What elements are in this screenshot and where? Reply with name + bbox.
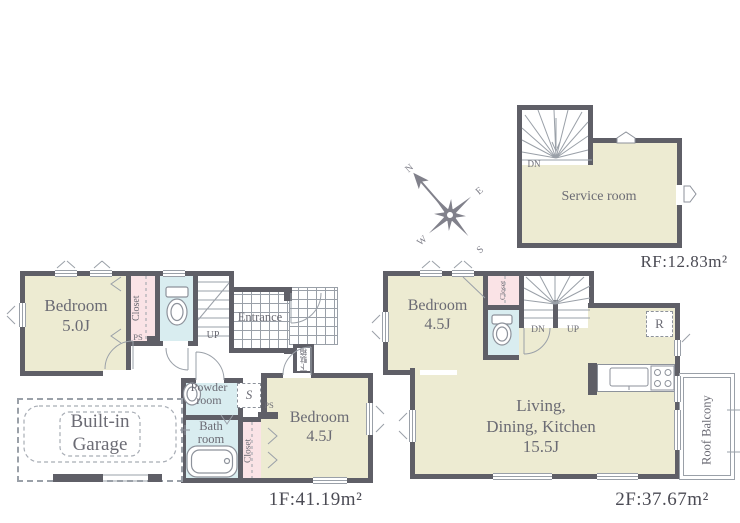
window bbox=[597, 473, 638, 480]
window bbox=[55, 270, 77, 277]
label-2f-closet: Closet bbox=[495, 274, 510, 306]
window bbox=[382, 312, 389, 342]
window bbox=[90, 270, 112, 277]
label-entrance: Entrance bbox=[233, 310, 287, 325]
compass-n: N bbox=[403, 162, 416, 175]
compass-icon: N E S W bbox=[374, 138, 515, 283]
room-2f-toilet bbox=[483, 305, 524, 360]
label-washer-space: S bbox=[240, 386, 258, 404]
door-opening bbox=[676, 185, 683, 205]
label-2f-area: 2F:37.67m² bbox=[588, 488, 736, 512]
entrance-porch bbox=[289, 287, 338, 345]
label-1f-up: UP bbox=[196, 329, 230, 342]
kitchen-counter bbox=[597, 364, 675, 392]
label-1f-closet-top: Closet bbox=[128, 280, 146, 336]
label-1f-closet-bottom: Closet bbox=[241, 427, 257, 475]
door-opening bbox=[103, 370, 133, 376]
label-refrigerator: R bbox=[646, 312, 673, 336]
door-opening bbox=[163, 341, 188, 346]
room-1f-toilet bbox=[155, 271, 198, 346]
balcony-door bbox=[674, 410, 681, 450]
window bbox=[452, 270, 474, 277]
label-garage: Built-in Garage bbox=[40, 406, 160, 462]
label-roof-balcony: Roof Balcony bbox=[698, 390, 716, 470]
garage-wall bbox=[148, 474, 162, 482]
window bbox=[493, 473, 552, 480]
compass-s: S bbox=[475, 244, 486, 256]
stair-divider-wall bbox=[553, 300, 558, 328]
label-rf-area: RF:12.83m² bbox=[628, 251, 740, 273]
label-1f-bedroom-5j: Bedroom 5.0J bbox=[26, 293, 126, 339]
label-powder-room: Powder room bbox=[182, 381, 236, 407]
sliding-opening bbox=[420, 370, 457, 375]
balcony-door bbox=[674, 376, 681, 402]
window bbox=[420, 270, 442, 277]
compass-e: E bbox=[474, 185, 486, 197]
label-ldk: Living, Dining, Kitchen 15.5J bbox=[450, 396, 632, 458]
door-arrow-icon bbox=[684, 186, 696, 202]
label-2f-bedroom: Bedroom 4.5J bbox=[390, 293, 485, 337]
label-shoe-cabinet: 下駄箱 bbox=[295, 347, 312, 373]
label-rf-dn: DN bbox=[521, 159, 547, 170]
window bbox=[366, 403, 373, 435]
room-rf-stairs bbox=[517, 105, 593, 165]
label-bath-room: Bath room bbox=[184, 420, 238, 446]
label-service-room: Service room bbox=[543, 189, 655, 205]
label-1f-bedroom-45j: Bedroom 4.5J bbox=[272, 405, 367, 449]
compass-w: W bbox=[415, 233, 430, 248]
pipe-shaft-block bbox=[147, 336, 155, 344]
label-2f-up: UP bbox=[559, 325, 587, 337]
window bbox=[19, 303, 26, 327]
label-1f-ps-top: PS bbox=[128, 332, 148, 343]
garage-wall bbox=[53, 474, 103, 482]
window bbox=[163, 270, 185, 277]
window bbox=[674, 340, 681, 356]
window bbox=[409, 410, 416, 442]
door-opening bbox=[283, 373, 311, 378]
floor-plan-canvas: N E S W Bedroom 5.0J Closet PS UP Entran… bbox=[0, 0, 740, 523]
window bbox=[313, 477, 347, 484]
wall-stub bbox=[284, 287, 292, 301]
label-2f-dn: DN bbox=[524, 325, 552, 337]
label-1f-area: 1F:41.19m² bbox=[248, 488, 383, 512]
kitchen-wall-stub bbox=[588, 363, 597, 395]
